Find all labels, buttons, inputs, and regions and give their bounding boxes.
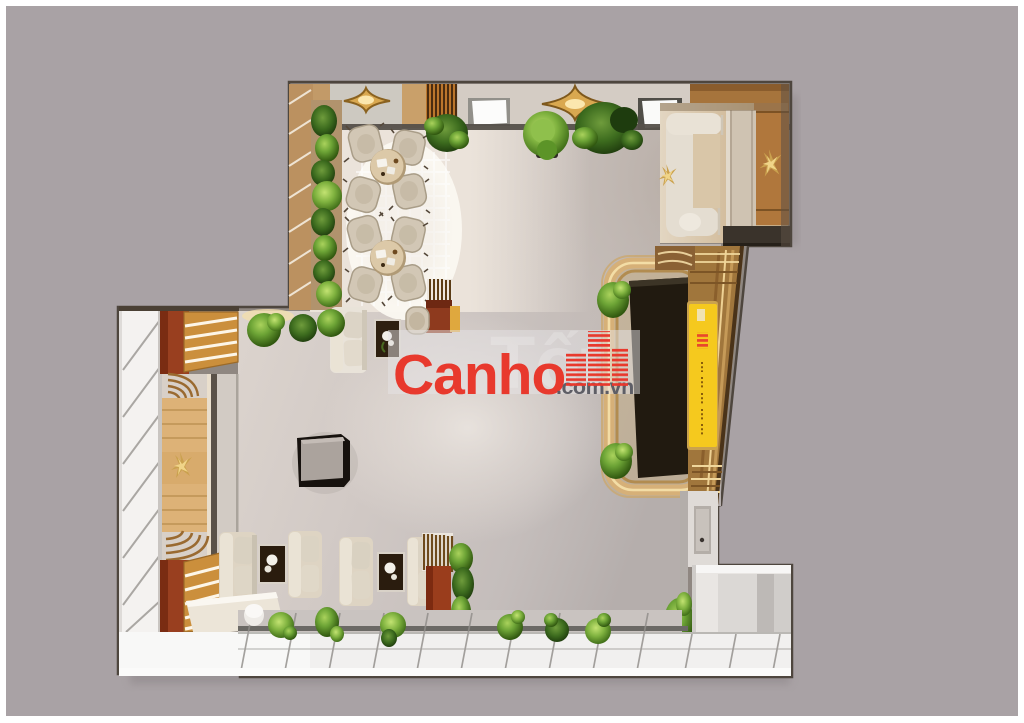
svg-text:Canho: Canho: [393, 343, 565, 407]
